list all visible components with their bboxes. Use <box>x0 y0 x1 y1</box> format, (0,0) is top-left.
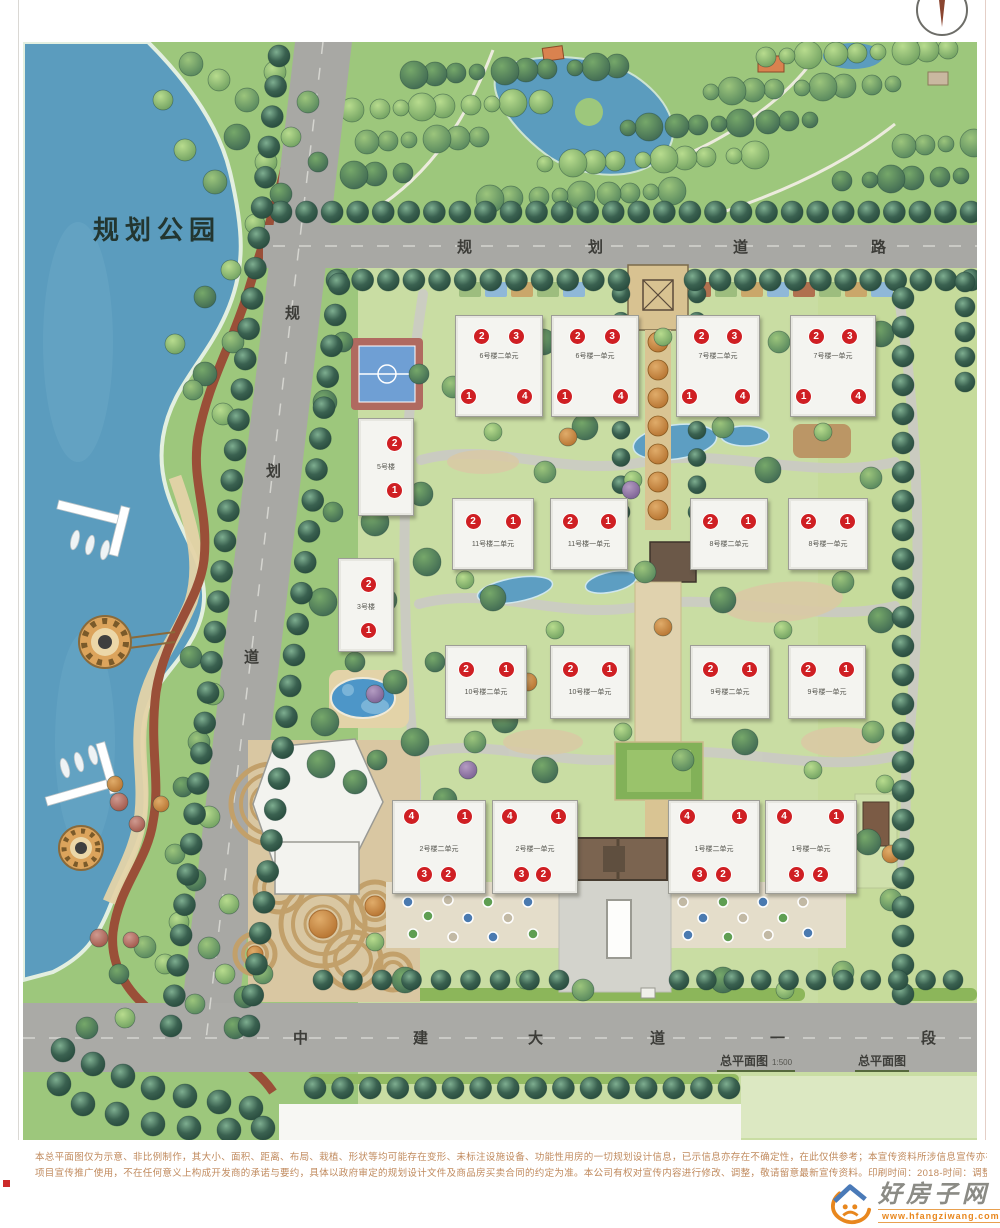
building-label: 11号楼一单元 <box>551 539 627 549</box>
unit-number-badge: 2 <box>441 867 456 882</box>
top-road-label-char: 路 <box>871 236 886 257</box>
unit-number-badge: 3 <box>605 329 620 344</box>
bottom-road-label-char: 大 <box>528 1027 543 1048</box>
disclaimer-line-1: 本总平面图仅为示意、非比例制作，其大小、面积、距离、布局、栽植、形状等均可能存在… <box>35 1149 987 1163</box>
building-label: 10号楼一单元 <box>551 687 629 697</box>
unit-number-badge: 4 <box>613 389 628 404</box>
building-9-2: 9号楼二单元21 <box>690 645 770 719</box>
building-1-1: 1号楼一单元4132 <box>765 800 857 894</box>
unit-number-badge: 2 <box>536 867 551 882</box>
building-label: 6号楼二单元 <box>456 351 542 361</box>
building-label: 9号楼二单元 <box>691 687 769 697</box>
unit-number-badge: 1 <box>457 809 472 824</box>
building-label: 11号楼二单元 <box>453 539 533 549</box>
unit-number-badge: 1 <box>840 514 855 529</box>
unit-number-badge: 3 <box>514 867 529 882</box>
watermark-logo: 好房子网 www.hfangziwang.com <box>828 1181 1000 1225</box>
unit-number-badge: 4 <box>777 809 792 824</box>
unit-number-badge: 1 <box>557 389 572 404</box>
plan-title: 总平面图 <box>855 1052 909 1072</box>
unit-number-badge: 2 <box>813 867 828 882</box>
unit-number-badge: 4 <box>502 809 517 824</box>
building-5: 5号楼21 <box>358 418 414 516</box>
building-8-1: 8号楼一单元21 <box>788 498 868 570</box>
unit-number-badge: 1 <box>551 809 566 824</box>
left-road-label-char: 划 <box>266 460 281 481</box>
unit-number-badge: 1 <box>601 514 616 529</box>
building-7-1: 7号楼一单元2314 <box>790 315 876 417</box>
compass-needle <box>938 0 946 27</box>
building-label: 2号楼二单元 <box>393 844 485 854</box>
unit-number-badge: 2 <box>801 514 816 529</box>
unit-number-badge: 1 <box>829 809 844 824</box>
building-11-2: 11号楼二单元21 <box>452 498 534 570</box>
unit-number-badge: 3 <box>509 329 524 344</box>
building-7-2: 7号楼二单元2314 <box>676 315 760 417</box>
building-10-2: 10号楼二单元21 <box>445 645 527 719</box>
bottom-road-label-char: 一 <box>770 1027 785 1048</box>
unit-number-badge: 2 <box>474 329 489 344</box>
left-road-label-char: 道 <box>244 646 259 667</box>
unit-number-badge: 1 <box>506 514 521 529</box>
building-3: 3号楼21 <box>338 558 394 652</box>
bottom-road-label-char: 道 <box>650 1027 665 1048</box>
unit-number-badge: 2 <box>716 867 731 882</box>
building-1-2: 1号楼二单元4132 <box>668 800 760 894</box>
building-label: 8号楼一单元 <box>789 539 867 549</box>
unit-number-badge: 4 <box>680 809 695 824</box>
unit-number-badge: 3 <box>789 867 804 882</box>
unit-number-badge: 1 <box>361 623 376 638</box>
unit-number-badge: 2 <box>361 577 376 592</box>
unit-number-badge: 4 <box>735 389 750 404</box>
building-6-2: 6号楼二单元2314 <box>455 315 543 417</box>
top-road-label-char: 规 <box>457 236 472 257</box>
building-8-2: 8号楼二单元21 <box>690 498 768 570</box>
plan-title-scaled: 总平面图1:500 <box>717 1052 795 1072</box>
building-label: 10号楼二单元 <box>446 687 526 697</box>
building-label: 1号楼二单元 <box>669 844 759 854</box>
unit-number-badge: 3 <box>692 867 707 882</box>
unit-number-badge: 1 <box>796 389 811 404</box>
building-6-1: 6号楼一单元2314 <box>551 315 639 417</box>
right-border-line <box>985 0 986 1228</box>
unit-number-badge: 2 <box>563 662 578 677</box>
logo-name: 好房子网 <box>878 1183 1000 1207</box>
disclaimer-line-2: 项目宣传推广使用，不在任何意义上构成开发商的承诺与要约，具体以政府审定的规划设计… <box>35 1165 987 1179</box>
top-road-label-char: 道 <box>733 236 748 257</box>
unit-number-badge: 2 <box>801 662 816 677</box>
unit-number-badge: 2 <box>703 514 718 529</box>
unit-number-badge: 1 <box>682 389 697 404</box>
building-label: 9号楼一单元 <box>789 687 865 697</box>
left-border-line <box>18 0 19 1228</box>
bottom-road-label-char: 段 <box>921 1027 936 1048</box>
unit-number-badge: 2 <box>466 514 481 529</box>
building-label: 2号楼一单元 <box>493 844 577 854</box>
unit-number-badge: 3 <box>727 329 742 344</box>
building-label: 7号楼二单元 <box>677 351 759 361</box>
left-road-label-char: 规 <box>285 302 300 323</box>
buildings-layer: 6号楼二单元23146号楼一单元23147号楼二单元23147号楼一单元2314… <box>23 42 977 1140</box>
masterplan-page: 6号楼二单元23146号楼一单元23147号楼二单元23147号楼一单元2314… <box>0 0 1000 1228</box>
unit-number-badge: 3 <box>842 329 857 344</box>
house-icon <box>828 1181 872 1225</box>
unit-number-badge: 1 <box>602 662 617 677</box>
building-label: 5号楼 <box>359 462 413 472</box>
unit-number-badge: 2 <box>570 329 585 344</box>
unit-number-badge: 2 <box>563 514 578 529</box>
building-2-1: 2号楼一单元4132 <box>492 800 578 894</box>
unit-number-badge: 2 <box>694 329 709 344</box>
park-label: 规划公园 <box>93 210 221 247</box>
plan-scale: 1:500 <box>772 1058 792 1067</box>
building-label: 8号楼二单元 <box>691 539 767 549</box>
unit-number-badge: 1 <box>461 389 476 404</box>
building-11-1: 11号楼一单元21 <box>550 498 628 570</box>
building-2-2: 2号楼二单元4132 <box>392 800 486 894</box>
building-label: 3号楼 <box>339 602 393 612</box>
building-label: 6号楼一单元 <box>552 351 638 361</box>
unit-number-badge: 4 <box>851 389 866 404</box>
unit-number-badge: 2 <box>387 436 402 451</box>
north-arrow-icon <box>916 0 968 36</box>
top-road-label-char: 划 <box>588 236 603 257</box>
unit-number-badge: 2 <box>459 662 474 677</box>
unit-number-badge: 4 <box>517 389 532 404</box>
unit-number-badge: 1 <box>741 514 756 529</box>
unit-number-badge: 1 <box>387 483 402 498</box>
unit-number-badge: 2 <box>703 662 718 677</box>
unit-number-badge: 1 <box>732 809 747 824</box>
unit-number-badge: 1 <box>839 662 854 677</box>
unit-number-badge: 3 <box>417 867 432 882</box>
unit-number-badge: 1 <box>499 662 514 677</box>
unit-number-badge: 1 <box>742 662 757 677</box>
unit-number-badge: 4 <box>404 809 419 824</box>
building-label: 7号楼一单元 <box>791 351 875 361</box>
bottom-road-label-char: 中 <box>293 1027 308 1048</box>
building-label: 1号楼一单元 <box>766 844 856 854</box>
building-9-1: 9号楼一单元21 <box>788 645 866 719</box>
building-10-1: 10号楼一单元21 <box>550 645 630 719</box>
plan-title-text: 总平面图 <box>858 1054 906 1068</box>
siteplan-map: 6号楼二单元23146号楼一单元23147号楼二单元23147号楼一单元2314… <box>23 42 977 1140</box>
logo-url: www.hfangziwang.com <box>878 1209 1000 1223</box>
plan-title-text: 总平面图 <box>720 1054 768 1068</box>
unit-number-badge: 2 <box>809 329 824 344</box>
bottom-road-label-char: 建 <box>413 1027 428 1048</box>
red-marker <box>3 1180 10 1187</box>
